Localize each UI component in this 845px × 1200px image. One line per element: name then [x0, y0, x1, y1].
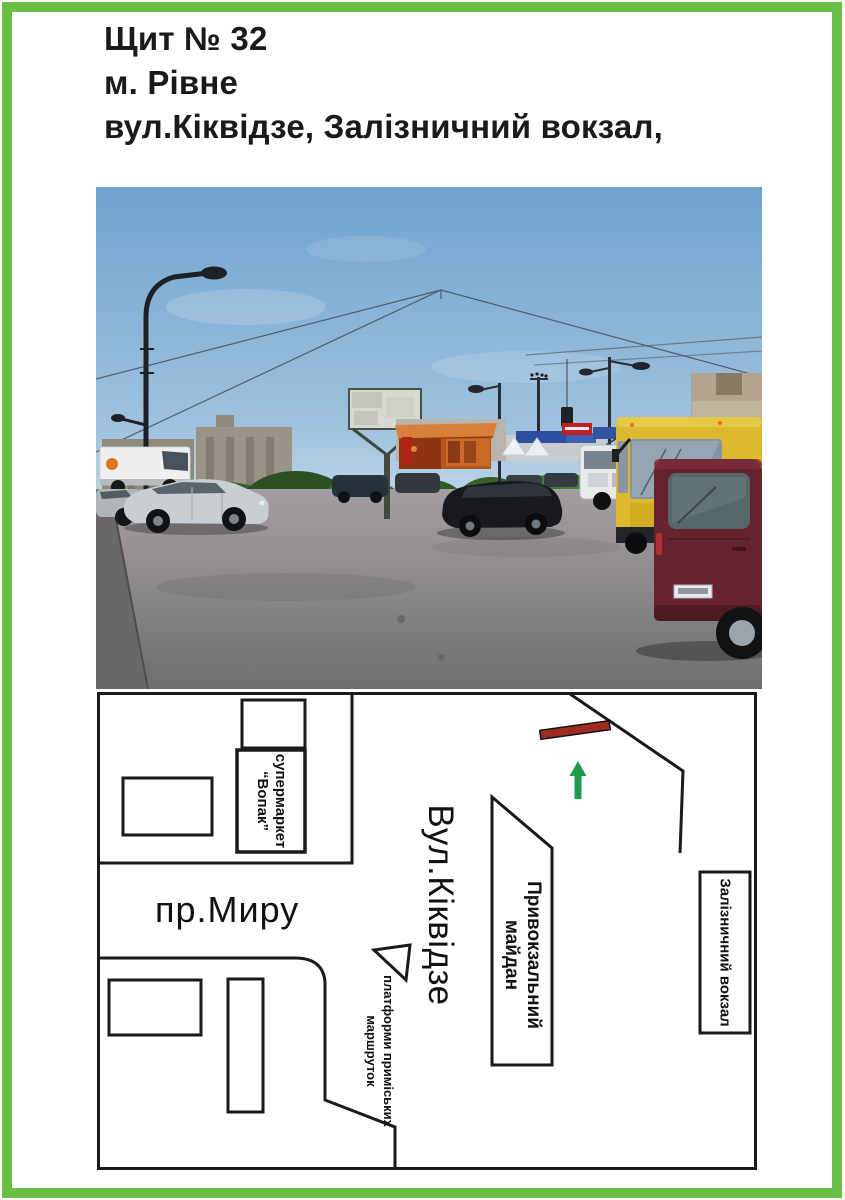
kiosk-orange — [395, 419, 506, 469]
van-logo — [106, 458, 118, 470]
billboard-passport-page: Щит № 32 м. Рівне вул.Кіквідзе, Залізнич… — [0, 0, 845, 1200]
station-label: Залізничний вокзал — [714, 877, 737, 1029]
black-sedan — [437, 481, 565, 540]
address-line: вул.Кіквідзе, Залізничний вокзал, — [104, 105, 663, 149]
square-label-line1: Привокзальний — [522, 881, 544, 1029]
supermarket-label-line1: супермаркет — [271, 754, 289, 848]
billboard-number: Щит № 32 — [104, 17, 663, 61]
platforms-label: платформи приміських маршруток — [362, 974, 398, 1128]
taillight — [656, 533, 662, 555]
street-label-pr-myru: пр.Миру — [155, 889, 299, 931]
square-label: Привокзальний майдан — [499, 855, 545, 1055]
city-name: м. Рівне — [104, 61, 663, 105]
location-map: пр.Миру Вул.Кіквідзе супермаркет “Вопак”… — [97, 692, 757, 1170]
building — [109, 980, 201, 1035]
building — [242, 700, 305, 748]
building — [228, 979, 263, 1112]
square-label-line2: майдан — [500, 920, 522, 990]
building — [123, 778, 212, 835]
floodlight-mast — [537, 377, 540, 439]
header: Щит № 32 м. Рівне вул.Кіквідзе, Залізнич… — [104, 17, 663, 149]
supermarket-label: супермаркет “Вопак” — [236, 749, 306, 853]
platforms-label-line1: платформи приміських — [380, 975, 397, 1127]
photo-scene — [96, 187, 762, 689]
supermarket-label-line2: “Вопак” — [253, 771, 271, 831]
street-label-kikvidze: Вул.Кіквідзе — [419, 790, 461, 1020]
location-photo — [96, 187, 762, 689]
platforms-label-line2: маршруток — [363, 1015, 380, 1086]
